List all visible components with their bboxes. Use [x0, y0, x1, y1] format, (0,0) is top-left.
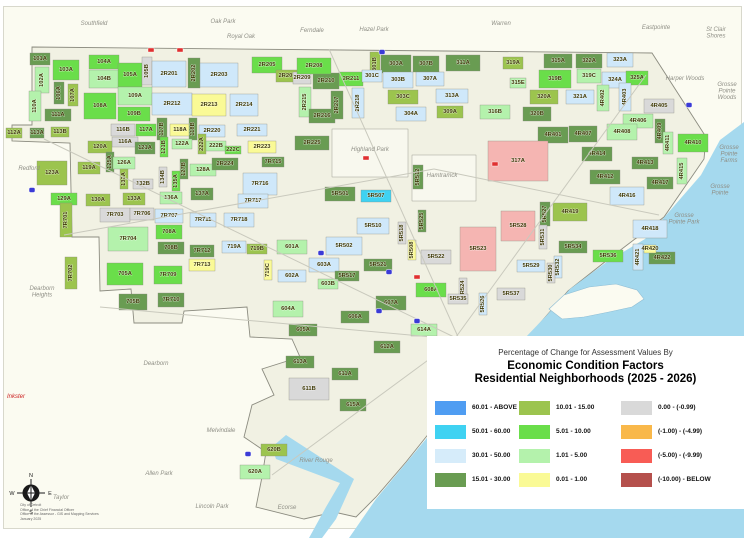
region-label-321A: 321A [573, 94, 588, 100]
region-label-313A: 313A [445, 93, 460, 99]
region-label-5R522: 5R522 [427, 254, 444, 260]
region-label-7R701: 7R701 [63, 211, 69, 229]
region-label-719C: 719C [265, 262, 271, 277]
region-label-719B: 719B [250, 246, 264, 252]
region-label-7R704: 7R704 [119, 236, 137, 242]
region-label-5R518: 5R518 [399, 224, 405, 242]
region-label-4R408: 4R408 [613, 129, 631, 135]
region-label-5R532: 5R532 [555, 258, 561, 275]
highway-marker-icon [414, 275, 420, 279]
region-label-116B: 116B [116, 127, 130, 133]
region-label-303A: 303A [389, 61, 404, 67]
region-label-2R214: 2R214 [235, 102, 253, 108]
region-label-2R205: 2R205 [258, 62, 276, 68]
region-label-320A: 320A [537, 94, 552, 100]
region-label-130A: 130A [91, 197, 106, 203]
region-label-117B: 117B [159, 122, 165, 136]
region-label-113A: 113A [30, 130, 44, 136]
region-label-708B: 708B [164, 245, 178, 251]
city-label-royal-oak: Royal Oak [227, 34, 256, 40]
legend-color-swatch [435, 401, 466, 415]
region-label-324A: 324A [608, 77, 623, 83]
region-label-2R208: 2R208 [305, 63, 323, 69]
region-label-127B: 127B [181, 162, 187, 176]
region-label-322A: 322A [582, 58, 597, 64]
legend-color-swatch [519, 449, 550, 463]
region-label-4R422: 4R422 [653, 255, 670, 261]
city-label-river-rouge: River Rouge [299, 458, 333, 464]
region-label-606A: 606A [348, 314, 363, 320]
legend-color-swatch [621, 449, 652, 463]
region-label-222A: 222A [199, 136, 205, 151]
region-label-129A: 129A [57, 196, 72, 202]
interstate-shield-icon [379, 50, 385, 55]
city-label-grosse-pointe: GrossePointe [710, 184, 730, 197]
map-title-line2: Residential Neighborhoods (2025 - 2026) [427, 372, 744, 385]
region-label-118B: 118B [190, 122, 196, 136]
city-label-hamtramck: Hamtramck [427, 173, 459, 179]
region-label-4R411: 4R411 [665, 134, 671, 152]
city-label-dearborn: Dearborn [143, 361, 169, 367]
region-label-320B: 320B [530, 111, 544, 117]
city-label-highland-park: Highland Park [351, 147, 390, 153]
region-label-620B: 620B [267, 447, 281, 453]
region-label-2R210: 2R210 [317, 78, 334, 84]
region-label-5R521: 5R521 [369, 262, 387, 268]
map-title-line1: Economic Condition Factors [427, 357, 744, 372]
region-label-109A: 109A [128, 93, 143, 99]
region-label-602A: 602A [285, 273, 300, 279]
region-label-5R508: 5R508 [409, 241, 415, 259]
region-label-121A: 121A [138, 145, 153, 151]
region-label-4R410: 4R410 [684, 140, 701, 146]
region-label-7R706: 7R706 [133, 211, 151, 217]
city-label-ferndale: Ferndale [300, 28, 324, 34]
region-label-116A: 116A [118, 139, 132, 145]
legend-range-label: (-5.00) - (-9.99) [658, 452, 702, 459]
region-label-7R702: 7R702 [68, 264, 74, 281]
city-label-dearborn-heights: DearbornHeights [29, 286, 55, 299]
legend-color-swatch [519, 401, 550, 415]
compass-e: E [48, 491, 52, 497]
region-label-2R209: 2R209 [293, 75, 311, 81]
region-label-4R419: 4R419 [561, 209, 579, 215]
region-label-2R211: 2R211 [343, 76, 361, 82]
highway-marker-icon [492, 162, 498, 166]
region-label-121B: 121B [161, 140, 167, 154]
region-label-613A: 613A [293, 359, 308, 365]
region-label-4R412: 4R412 [596, 174, 613, 180]
region-label-5R531: 5R531 [540, 228, 546, 246]
region-label-105A: 105A [123, 72, 138, 78]
legend-color-swatch [435, 449, 466, 463]
region-label-317A: 317A [511, 158, 526, 164]
region-label-607A: 607A [384, 300, 399, 306]
region-label-705B: 705B [126, 299, 140, 305]
region-label-614A: 614A [417, 327, 432, 333]
region-label-111A: 111A [51, 112, 65, 118]
region-label-122A: 122A [175, 141, 190, 147]
region-label-133A: 133A [127, 196, 142, 202]
legend-range-label: (-10.00) - BELOW [658, 476, 711, 483]
legend-color-swatch [519, 473, 550, 487]
region-label-107A: 107A [70, 87, 76, 102]
region-label-112A: 112A [7, 130, 21, 136]
region-label-5R525: 5R525 [419, 212, 425, 230]
region-label-125A: 125A [107, 154, 113, 169]
region-label-7R713: 7R713 [193, 262, 211, 268]
region-label-109B: 109B [127, 111, 141, 117]
legend-range-label: (-1.00) - (-4.99) [658, 428, 702, 435]
region-label-316B: 316B [488, 109, 502, 115]
region-label-304A: 304A [404, 111, 419, 117]
legend-range-label: 1.01 - 5.00 [556, 452, 587, 459]
region-label-222C: 222C [226, 147, 241, 153]
region-label-309A: 309A [443, 109, 458, 115]
region-label-4R403: 4R403 [622, 88, 628, 106]
region-label-7R716: 7R716 [251, 181, 269, 187]
region-label-7R715: 7R715 [264, 159, 282, 165]
region-label-4R414: 4R414 [588, 151, 606, 157]
region-label-103A: 103A [59, 67, 74, 73]
legend-range-label: 15.01 - 30.00 [472, 476, 510, 483]
city-label-allen-park: Allen Park [144, 471, 173, 477]
region-label-128A: 128A [196, 167, 211, 173]
region-label-2R223: 2R223 [253, 144, 271, 150]
legend-range-label: 5.01 - 10.00 [556, 428, 591, 435]
region-label-4R402: 4R402 [600, 89, 606, 106]
legend-range-label: 10.01 - 15.00 [556, 404, 594, 411]
city-label-taylor: Taylor [53, 495, 70, 501]
region-label-2R216: 2R216 [313, 113, 331, 119]
fine-print-line: January 2025 [20, 517, 99, 522]
city-label-eastpointe: Eastpointe [642, 25, 671, 31]
region-label-301B: 301B [372, 57, 378, 71]
region-label-5R501: 5R501 [331, 191, 349, 197]
region-label-4R409: 4R409 [657, 122, 663, 140]
region-label-4R416: 4R416 [618, 193, 636, 199]
region-label-315A: 315A [551, 58, 566, 64]
region-label-315E: 315E [511, 80, 525, 86]
city-label-st-clair-shores: St ClairShores [706, 27, 727, 40]
region-label-2R201: 2R201 [160, 71, 178, 77]
legend-color-swatch [435, 425, 466, 439]
region-label-319A: 319A [506, 60, 521, 66]
region-label-7R709: 7R709 [159, 272, 177, 278]
region-label-222B: 222B [209, 143, 223, 149]
region-label-106A: 106A [56, 85, 62, 100]
legend-color-swatch [621, 401, 652, 415]
region-label-4R407: 4R407 [574, 131, 591, 137]
interstate-shield-icon [376, 309, 382, 314]
region-label-603A: 603A [317, 262, 332, 268]
city-label-southfield: Southfield [81, 21, 108, 27]
region-label-303B: 303B [391, 77, 405, 83]
region-label-605A: 605A [296, 327, 311, 333]
highland-park-enclave [332, 129, 408, 177]
legend-color-swatch [435, 473, 466, 487]
city-label-grosse-pointe-farms: GrossePointeFarms [719, 145, 739, 164]
legend-color-swatch [621, 425, 652, 439]
region-label-2R202: 2R202 [191, 64, 197, 81]
city-label-grosse-pointe-woods: GrossePointeWoods [717, 82, 737, 101]
region-label-7R703: 7R703 [106, 212, 124, 218]
region-label-2R224: 2R224 [216, 161, 234, 167]
region-label-5R535: 5R535 [449, 296, 467, 302]
region-label-126A: 126A [117, 160, 132, 166]
region-label-5R523: 5R523 [469, 246, 487, 252]
region-label-119A: 119A [82, 165, 96, 171]
region-label-719A: 719A [227, 244, 242, 250]
region-label-2R220: 2R220 [203, 128, 220, 134]
region-label-5R507: 5R507 [367, 193, 384, 199]
region-label-4R405: 4R405 [650, 103, 668, 109]
region-label-5R517: 5R517 [338, 273, 355, 279]
city-label-melvindale: Melvindale [207, 428, 236, 434]
region-label-117A: 117A [139, 127, 153, 133]
region-label-134B: 134B [160, 170, 166, 184]
city-label-hazel-park: Hazel Park [359, 27, 389, 33]
region-label-611A: 611A [338, 371, 352, 377]
region-label-319C: 319C [582, 73, 597, 79]
legend-range-label: 60.01 - ABOVE [472, 404, 517, 411]
interstate-shield-icon [686, 103, 692, 108]
region-label-5R537: 5R537 [502, 291, 519, 297]
highway-marker-icon [363, 156, 369, 160]
region-label-612A: 612A [380, 344, 395, 350]
region-label-323A: 323A [613, 57, 628, 63]
region-label-102A: 102A [39, 72, 45, 87]
region-label-104A: 104A [97, 59, 112, 65]
region-label-120A: 120A [93, 144, 108, 150]
legend-color-swatch [621, 473, 652, 487]
interstate-shield-icon [386, 270, 392, 275]
region-label-2R217: 2R217 [334, 96, 340, 113]
region-label-319B: 319B [548, 76, 562, 82]
region-label-4R406: 4R406 [629, 118, 647, 124]
region-label-2R225: 2R225 [303, 140, 321, 146]
city-label-ecorse: Ecorse [278, 505, 297, 511]
legend-range-label: 30.01 - 50.00 [472, 452, 510, 459]
legend-range-label: 50.01 - 60.00 [472, 428, 510, 435]
city-label-oak-park: Oak Park [210, 19, 236, 25]
interstate-shield-icon [414, 319, 420, 324]
region-label-118A: 118A [173, 127, 187, 133]
region-label-603B: 603B [321, 281, 335, 287]
legend-panel: Percentage of Change for Assessment Valu… [427, 336, 744, 509]
region-label-110A: 110A [32, 98, 38, 112]
region-label-611B: 611B [302, 386, 316, 392]
region-label-5R529: 5R529 [522, 263, 540, 269]
region-label-101A: 101A [33, 56, 48, 62]
highway-marker-icon [177, 48, 183, 52]
region-label-5R534: 5R534 [564, 244, 582, 250]
region-label-307A: 307A [423, 76, 438, 82]
region-label-5R502: 5R502 [335, 243, 352, 249]
region-label-307B: 307B [419, 61, 433, 67]
legend-range-label: 0.00 - (-0.99) [658, 404, 696, 411]
region-label-2R221: 2R221 [243, 127, 261, 133]
legend-color-swatch [519, 425, 550, 439]
region-label-7R710: 7R710 [162, 297, 179, 303]
city-label-inkster: Inkster [7, 394, 26, 400]
region-label-5R530: 5R530 [548, 264, 554, 281]
region-label-708A: 708A [162, 229, 177, 235]
region-label-4R417: 4R417 [651, 180, 668, 186]
region-label-4R413: 4R413 [636, 160, 654, 166]
region-label-301C: 301C [365, 73, 380, 79]
region-label-123A: 123A [45, 170, 60, 176]
region-label-137A: 137A [195, 191, 210, 197]
region-label-7R711: 7R711 [195, 217, 213, 223]
compass-n: N [29, 473, 33, 479]
legend-subtitle: Percentage of Change for Assessment Valu… [427, 336, 744, 357]
region-label-615A: 615A [346, 402, 361, 408]
fine-print: City of DetroitOffice of the Chief Finan… [20, 503, 99, 521]
region-label-5R510: 5R510 [364, 223, 381, 229]
city-label-harper-woods: Harper Woods [666, 76, 705, 82]
region-label-2R212: 2R212 [163, 101, 180, 107]
region-label-105B: 105B [144, 64, 150, 78]
region-label-4R420: 4R420 [641, 246, 658, 252]
region-label-5R536: 5R536 [599, 253, 617, 259]
region-label-620A: 620A [248, 469, 263, 475]
interstate-shield-icon [29, 188, 35, 193]
city-label-lincoln-park: Lincoln Park [195, 504, 229, 510]
interstate-shield-icon [245, 452, 251, 457]
highway-marker-icon [148, 48, 154, 52]
legend-swatches: 60.01 - ABOVE50.01 - 60.0030.01 - 50.001… [427, 398, 744, 506]
region-label-303C: 303C [396, 94, 411, 100]
region-label-604A: 604A [281, 306, 296, 312]
region-label-2R213: 2R213 [200, 102, 218, 108]
legend-range-label: 0.01 - 1.00 [556, 476, 587, 483]
region-label-104B: 104B [97, 76, 111, 82]
region-label-2R203: 2R203 [210, 72, 228, 78]
region-label-2R215: 2R215 [302, 93, 308, 111]
region-label-4R401: 4R401 [544, 132, 562, 138]
city-label-redford: Redford [18, 166, 40, 172]
region-label-4R418: 4R418 [641, 226, 659, 232]
region-label-108A: 108A [93, 103, 108, 109]
region-label-4R415: 4R415 [679, 162, 685, 180]
map-document: { "title": { "line1": "Percentage of Cha… [0, 0, 744, 531]
region-label-311A: 311A [456, 60, 470, 66]
region-label-7R712: 7R712 [193, 248, 210, 254]
city-label-warren: Warren [491, 21, 511, 27]
compass-w: W [9, 491, 15, 497]
region-label-601A: 601A [285, 244, 300, 250]
region-label-7R718: 7R718 [230, 217, 248, 223]
interstate-shield-icon [318, 251, 324, 256]
region-label-135A: 135A [173, 173, 179, 188]
region-label-4R421: 4R421 [635, 248, 641, 266]
region-label-113B: 113B [53, 129, 67, 135]
region-label-5R528: 5R528 [509, 223, 527, 229]
region-label-705A: 705A [118, 271, 133, 277]
